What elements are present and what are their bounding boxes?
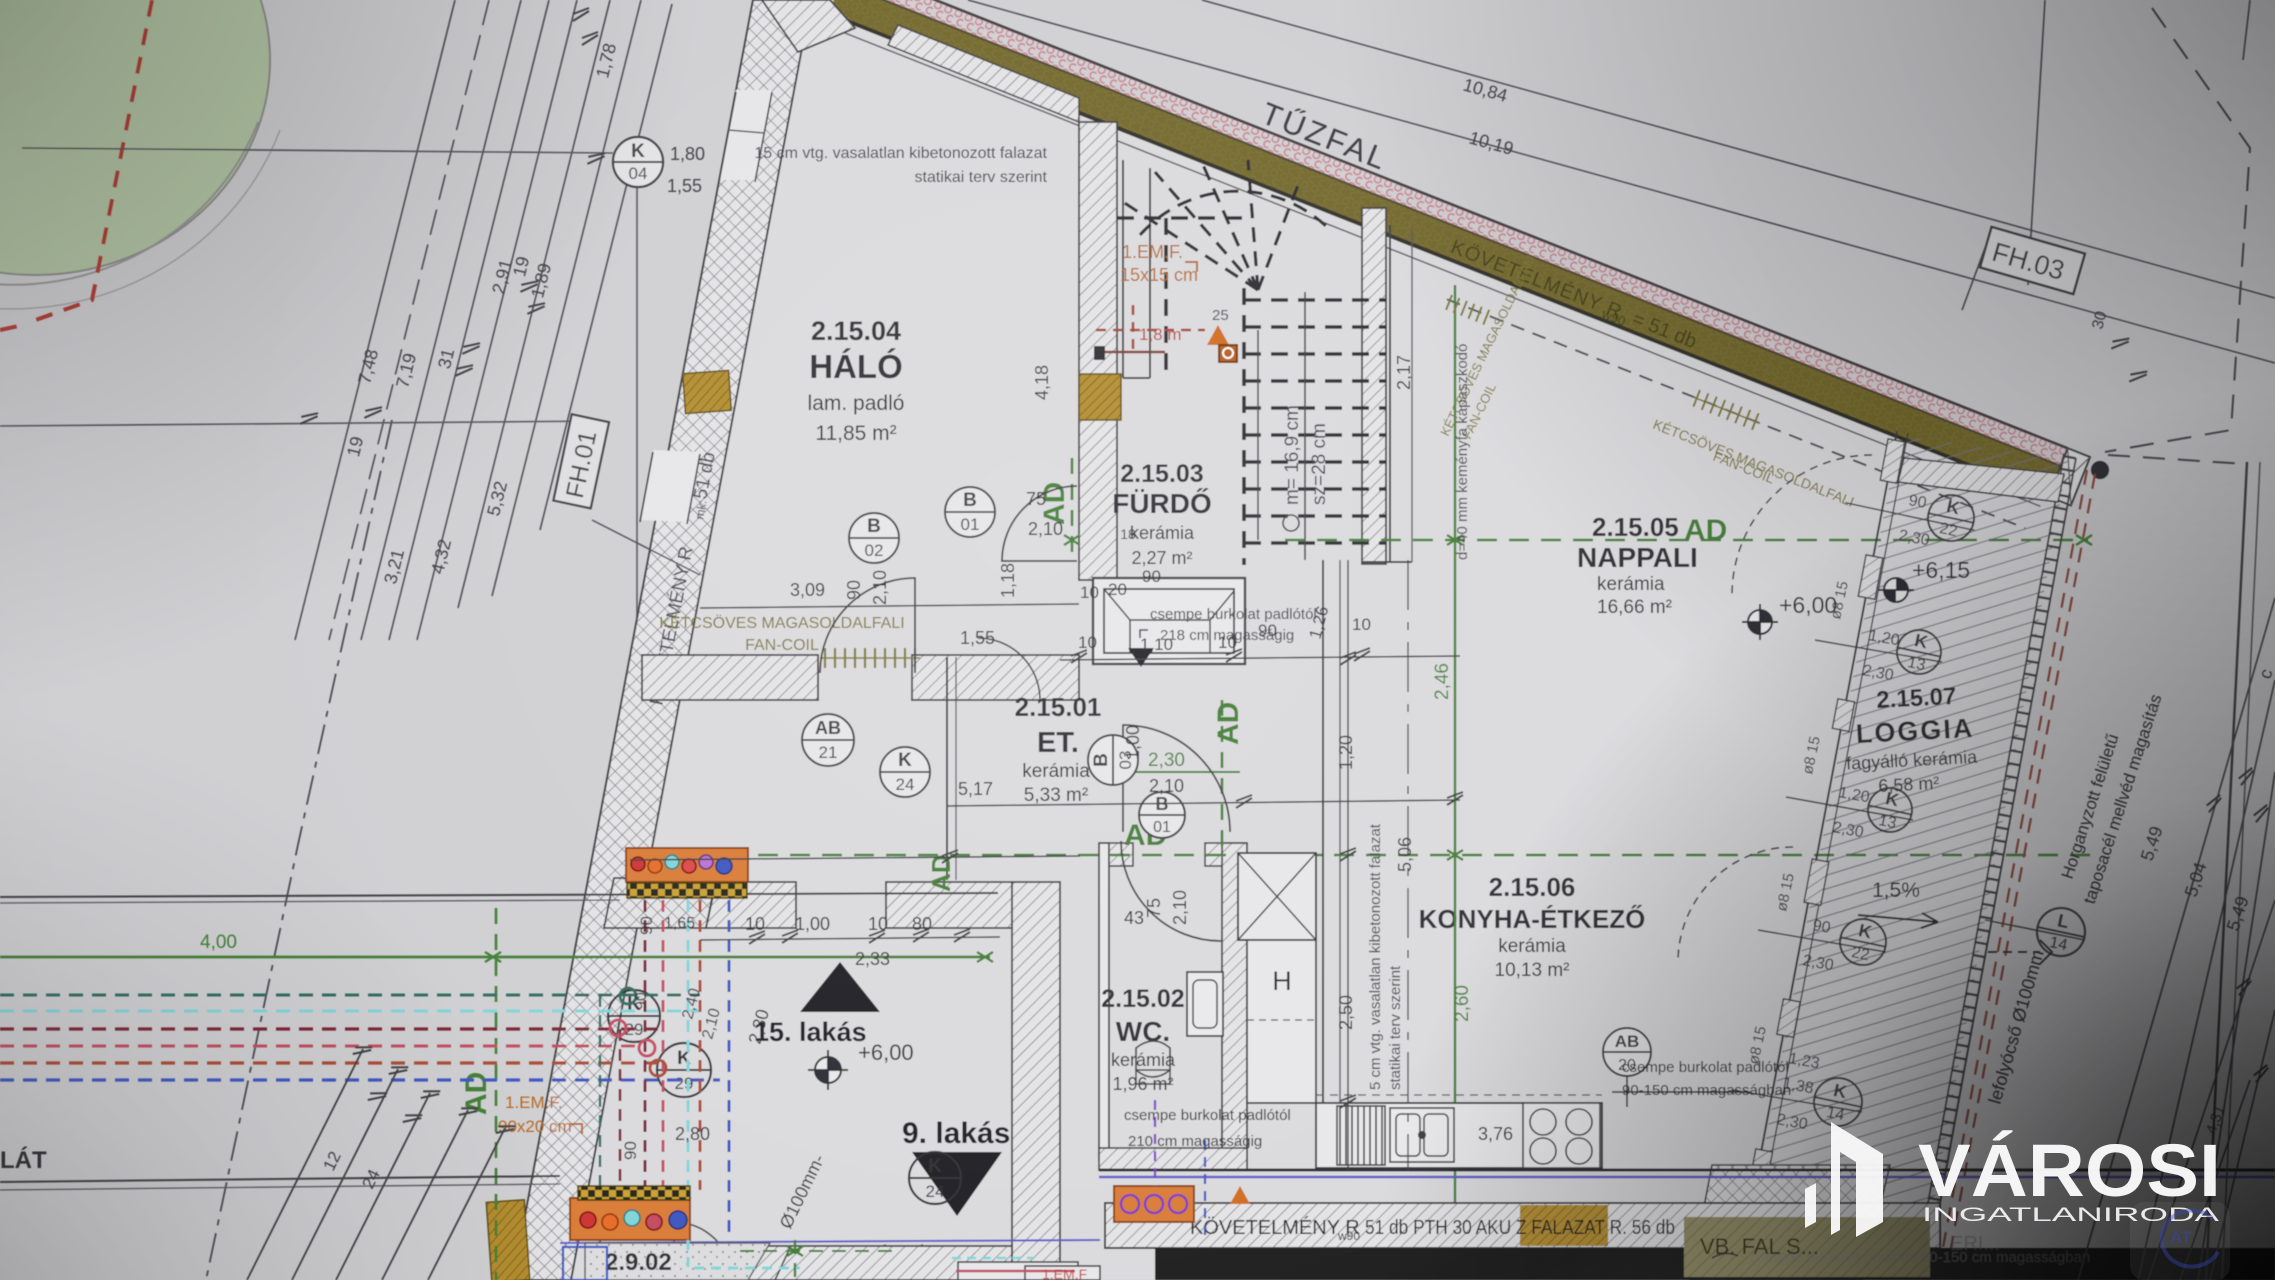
svg-text:AT: AT bbox=[2170, 1228, 2192, 1247]
svg-text:VÁROSI: VÁROSI bbox=[1918, 1129, 2221, 1212]
